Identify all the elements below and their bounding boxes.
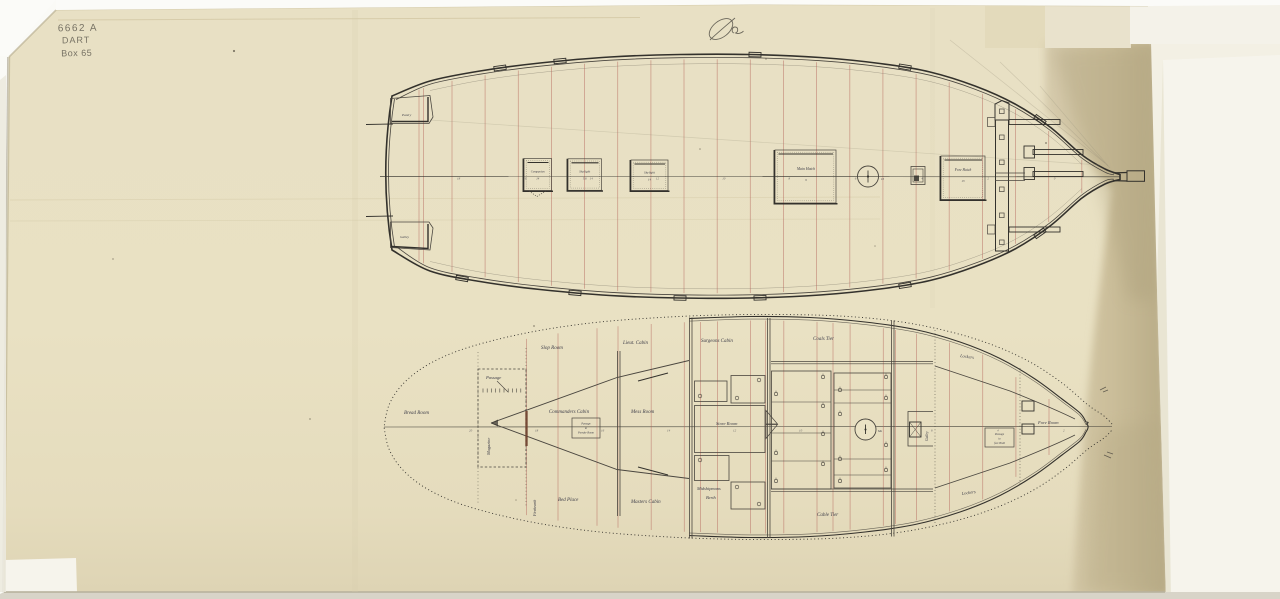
svg-text:6662 A: 6662 A bbox=[58, 23, 98, 35]
svg-text:Fore Hatch: Fore Hatch bbox=[954, 168, 972, 172]
svg-text:Passage: Passage bbox=[580, 423, 591, 426]
svg-text:Commanders Cabin: Commanders Cabin bbox=[549, 410, 590, 415]
svg-text:Mess Room: Mess Room bbox=[630, 410, 655, 415]
svg-text:5.6: 5.6 bbox=[583, 177, 587, 181]
svg-text:Surgeons Cabin: Surgeons Cabin bbox=[701, 339, 733, 344]
svg-text:Coals Tier: Coals Tier bbox=[813, 337, 834, 342]
svg-text:Fore Room: Fore Room bbox=[1037, 420, 1059, 425]
svg-text:Galley: Galley bbox=[400, 235, 410, 239]
svg-text:14: 14 bbox=[667, 429, 671, 433]
svg-text:Powder Room: Powder Room bbox=[577, 432, 594, 435]
svg-text:18: 18 bbox=[457, 177, 461, 181]
svg-text:10: 10 bbox=[881, 177, 885, 181]
svg-text:12: 12 bbox=[733, 429, 737, 433]
svg-text:Passage: Passage bbox=[485, 375, 501, 380]
svg-text:12: 12 bbox=[656, 177, 660, 181]
svg-text:fore Hold: fore Hold bbox=[994, 442, 1005, 445]
svg-text:10: 10 bbox=[722, 177, 726, 181]
svg-text:Box 65: Box 65 bbox=[61, 48, 92, 59]
svg-text:Passage: Passage bbox=[994, 433, 1005, 436]
svg-text:Companion: Companion bbox=[531, 170, 546, 174]
svg-text:Pantry: Pantry bbox=[401, 113, 412, 117]
svg-text:Slop Room: Slop Room bbox=[541, 346, 563, 351]
svg-text:Midshipmans: Midshipmans bbox=[696, 486, 721, 491]
svg-text:Magazine: Magazine bbox=[486, 438, 491, 456]
svg-text:Ma: Ma bbox=[877, 429, 882, 433]
svg-text:Skylight: Skylight bbox=[644, 170, 656, 174]
svg-text:Skylight: Skylight bbox=[579, 170, 591, 174]
svg-text:Firehearth: Firehearth bbox=[533, 500, 537, 517]
svg-text:Berth: Berth bbox=[706, 495, 717, 500]
svg-text:Masters Cabin: Masters Cabin bbox=[630, 500, 661, 505]
svg-text:16: 16 bbox=[601, 429, 605, 433]
svg-text:Main Hatch: Main Hatch bbox=[796, 167, 815, 171]
svg-text:Bread Room: Bread Room bbox=[404, 411, 429, 416]
svg-text:Cable Tier: Cable Tier bbox=[817, 513, 838, 518]
svg-text:DART: DART bbox=[62, 35, 91, 45]
svg-text:18: 18 bbox=[535, 429, 539, 433]
svg-text:Bed Place: Bed Place bbox=[558, 498, 579, 503]
svg-text:20: 20 bbox=[469, 429, 473, 433]
svg-text:10: 10 bbox=[799, 429, 803, 433]
svg-text:Lieut. Cabin: Lieut. Cabin bbox=[622, 341, 649, 346]
svg-text:Store Room: Store Room bbox=[716, 421, 738, 426]
svg-text:14: 14 bbox=[648, 177, 652, 181]
svg-text:14: 14 bbox=[536, 177, 540, 181]
svg-text:14: 14 bbox=[590, 177, 594, 181]
svg-text:Galley: Galley bbox=[925, 431, 929, 441]
svg-text:13: 13 bbox=[962, 179, 966, 183]
